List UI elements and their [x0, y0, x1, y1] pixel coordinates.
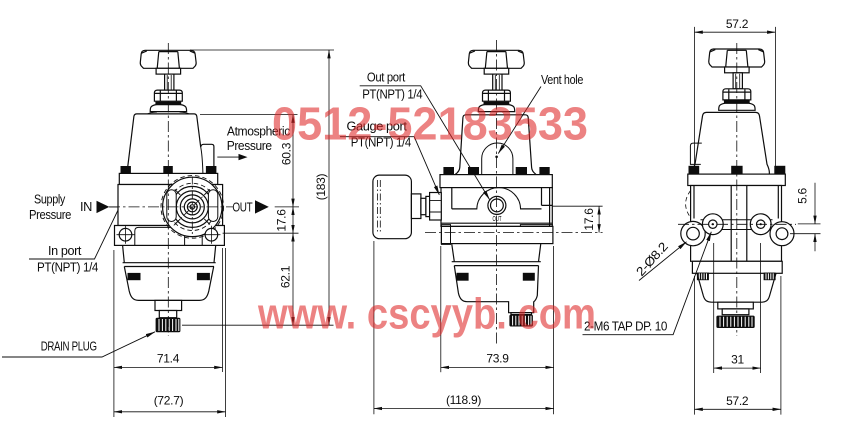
- svg-text:2-M6 TAP DP. 10: 2-M6 TAP DP. 10: [584, 320, 667, 334]
- svg-text:17.6: 17.6: [275, 209, 289, 232]
- svg-text:71.4: 71.4: [157, 352, 180, 366]
- svg-text:In port: In port: [48, 244, 82, 258]
- svg-text:5.6: 5.6: [796, 187, 810, 203]
- svg-text:Pressure: Pressure: [227, 139, 272, 153]
- svg-text:31: 31: [731, 352, 744, 366]
- svg-text:(72.7): (72.7): [154, 394, 184, 408]
- svg-text:73.9: 73.9: [486, 352, 509, 366]
- svg-text:PT(NPT) 1/4: PT(NPT) 1/4: [37, 261, 98, 275]
- svg-text:57.2: 57.2: [726, 17, 749, 31]
- svg-text:Supply: Supply: [34, 193, 66, 207]
- svg-text:Out port: Out port: [367, 71, 406, 85]
- svg-text:17.6: 17.6: [582, 208, 596, 231]
- svg-text:Pressure: Pressure: [29, 208, 71, 222]
- svg-text:62.1: 62.1: [279, 265, 293, 288]
- svg-text:0512-52183533: 0512-52183533: [272, 98, 588, 150]
- svg-text:(118.9): (118.9): [446, 393, 481, 407]
- svg-text:(183): (183): [314, 173, 328, 200]
- svg-text:OUT: OUT: [493, 216, 502, 223]
- svg-text:57.2: 57.2: [726, 394, 749, 408]
- svg-text:www. cscyyb. com: www. cscyyb. com: [257, 290, 596, 339]
- svg-text:IN: IN: [80, 200, 92, 214]
- svg-text:OUT: OUT: [232, 201, 253, 215]
- svg-text:Vent hole: Vent hole: [541, 73, 583, 87]
- svg-text:DRAIN PLUG: DRAIN PLUG: [41, 339, 97, 353]
